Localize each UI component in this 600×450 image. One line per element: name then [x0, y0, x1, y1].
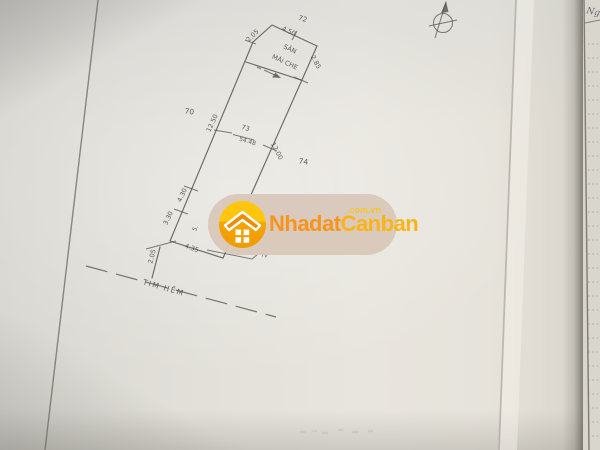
dim-right-main: 12.00 [269, 141, 285, 161]
dim-top-edge: 4.50 [281, 25, 298, 38]
brand-logo-icon [219, 201, 266, 248]
sheet-frame-line [45, 0, 98, 450]
adjacent-parcel-left: 70 [184, 106, 195, 116]
brand-domain: .com.vn [347, 205, 381, 215]
porch-label-line2: MÁI CHE [271, 52, 300, 72]
dim-bottom-edge: 4.35 [184, 242, 200, 254]
adjacent-parcel-right: 74 [298, 156, 309, 166]
porch-label-line1: SÂN [282, 42, 298, 56]
parcel-area: 54.48 [238, 136, 257, 148]
scanned-survey-photo: Ng [0, 0, 600, 450]
alley-centerline-label: TIM HẼM [141, 277, 186, 298]
watermark-pill: NhadatCanban .com.vn [208, 194, 397, 255]
dim-right-upper: 2.85 [309, 54, 323, 71]
underlying-sheet: Ng [562, 0, 600, 450]
adjacent-parcel-top: 72 [297, 14, 308, 24]
partial-label: 5. [191, 224, 200, 232]
paper-fold [499, 0, 534, 450]
north-arrow-icon [429, 1, 457, 38]
house-icon [219, 201, 266, 248]
dim-left-lower-b: 3.30 [162, 210, 175, 227]
brand-wordmark: NhadatCanban [269, 211, 418, 237]
dim-top-left-cut: 2.05 [245, 28, 261, 44]
faint-stamp-smudge [300, 430, 373, 433]
parcel-number: 73 [240, 123, 250, 133]
brand-wordmark-primary: Nhadat [269, 211, 341, 236]
